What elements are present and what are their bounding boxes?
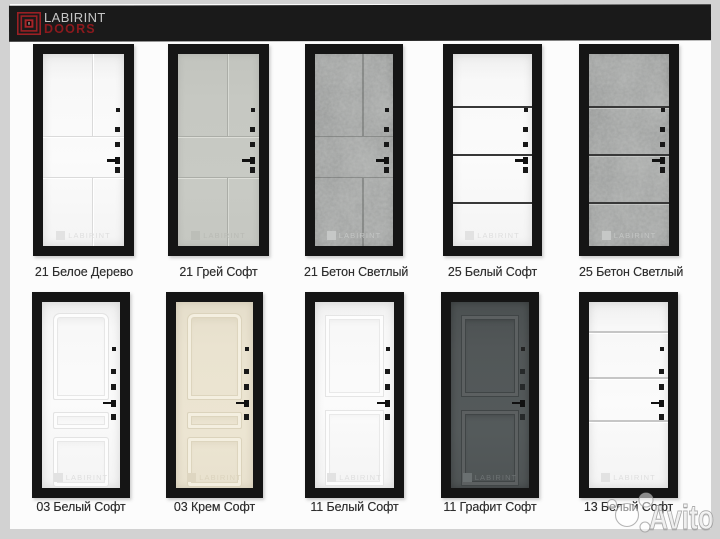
- svg-text:Avito: Avito: [649, 499, 714, 534]
